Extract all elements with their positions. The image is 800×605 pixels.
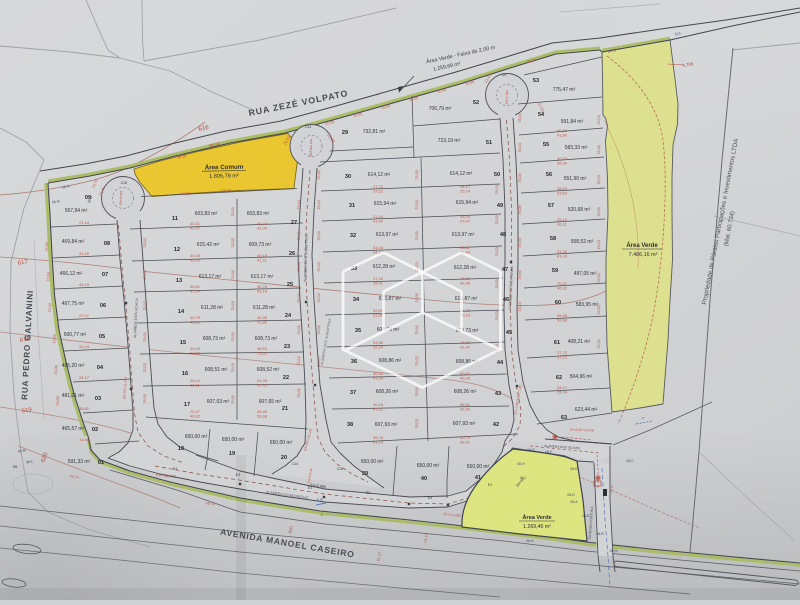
svg-text:613,17 m²: 613,17 m² — [199, 274, 222, 280]
svg-text:15,00: 15,00 — [317, 293, 322, 303]
svg-text:15,00: 15,00 — [415, 231, 420, 241]
svg-text:24,17: 24,17 — [79, 375, 90, 380]
svg-text:650,00 m²: 650,00 m² — [417, 463, 440, 469]
svg-text:15,00: 15,00 — [518, 270, 523, 280]
svg-text:Área Verde: Área Verde — [522, 514, 551, 521]
svg-text:63: 63 — [561, 415, 567, 421]
svg-text:15,00: 15,00 — [143, 270, 148, 280]
svg-text:15,00: 15,00 — [231, 270, 236, 280]
svg-text:567,94 m²: 567,94 m² — [65, 208, 88, 214]
svg-text:E1: E1 — [488, 483, 492, 487]
svg-text:40: 40 — [421, 476, 427, 482]
svg-text:26: 26 — [289, 251, 295, 257]
svg-text:E9+1 MN: E9+1 MN — [505, 90, 509, 104]
svg-text:56: 56 — [546, 172, 552, 178]
svg-text:40,92: 40,92 — [190, 414, 201, 419]
svg-text:15,03: 15,03 — [231, 363, 236, 373]
svg-text:E2: E2 — [366, 491, 370, 495]
svg-text:06-E: 06-E — [570, 467, 578, 471]
svg-text:15,00: 15,00 — [597, 339, 602, 349]
svg-text:E1: E1 — [308, 486, 312, 490]
svg-text:22: 22 — [283, 375, 289, 381]
svg-text:06-B: 06-B — [582, 514, 590, 518]
svg-text:15,03: 15,03 — [317, 262, 322, 272]
svg-text:706,79 m²: 706,79 m² — [429, 106, 452, 112]
svg-text:48: 48 — [500, 232, 506, 238]
svg-text:61: 61 — [554, 340, 560, 346]
svg-text:15,03: 15,03 — [231, 238, 236, 248]
svg-text:1.806,78 m²: 1.806,78 m² — [209, 173, 239, 180]
svg-text:15,03: 15,03 — [495, 185, 500, 195]
svg-text:15,00: 15,00 — [45, 242, 50, 252]
svg-text:31,04: 31,04 — [79, 344, 90, 349]
svg-text:40,92: 40,92 — [557, 286, 568, 291]
svg-text:06-I: 06-I — [520, 476, 526, 480]
svg-text:31: 31 — [349, 203, 355, 209]
svg-text:608,73 m²: 608,73 m² — [203, 336, 226, 342]
svg-text:59: 59 — [552, 268, 558, 274]
svg-text:41,40: 41,40 — [373, 219, 384, 224]
svg-text:C15: C15 — [337, 467, 343, 471]
svg-text:15,00: 15,00 — [518, 205, 523, 215]
svg-text:15,03: 15,03 — [143, 238, 148, 248]
svg-text:558,52 m²: 558,52 m² — [571, 239, 594, 245]
svg-text:11,44: 11,44 — [79, 437, 89, 442]
svg-text:15,00: 15,00 — [415, 170, 420, 180]
svg-text:06: 06 — [100, 303, 106, 309]
svg-text:60: 60 — [555, 300, 561, 306]
svg-text:37,22: 37,22 — [373, 189, 384, 194]
svg-text:583,33 m²: 583,33 m² — [565, 145, 588, 151]
svg-text:77,84: 77,84 — [221, 188, 232, 193]
svg-text:29: 29 — [342, 130, 348, 136]
svg-text:Área Comum: Área Comum — [205, 164, 244, 172]
svg-text:37: 37 — [350, 390, 356, 396]
svg-text:20: 20 — [281, 455, 287, 461]
svg-text:583,95 m²: 583,95 m² — [576, 302, 599, 308]
svg-text:611,28 m²: 611,28 m² — [253, 305, 275, 311]
svg-text:32,24: 32,24 — [373, 345, 384, 350]
svg-text:41,11: 41,11 — [257, 258, 267, 263]
svg-text:608,26 m²: 608,26 m² — [454, 389, 477, 395]
svg-text:15,00: 15,00 — [518, 173, 523, 183]
svg-text:06-C: 06-C — [626, 459, 634, 463]
svg-text:615,94 m²: 615,94 m² — [374, 201, 397, 207]
svg-text:15,00: 15,00 — [597, 207, 602, 217]
svg-text:41,09: 41,09 — [373, 376, 384, 381]
svg-text:15,00: 15,00 — [317, 170, 322, 180]
svg-text:723,19 m²: 723,19 m² — [438, 138, 461, 144]
svg-text:03: 03 — [95, 396, 101, 402]
svg-text:60+6,0E=12,00B: 60+6,0E=12,00B — [570, 428, 594, 433]
svg-text:612,28 m²: 612,28 m² — [373, 264, 396, 270]
svg-text:47: 47 — [502, 267, 508, 273]
svg-text:52: 52 — [473, 100, 479, 106]
svg-text:41,54: 41,54 — [460, 407, 471, 412]
svg-text:732,81 m²: 732,81 m² — [363, 129, 386, 135]
svg-text:15,03: 15,03 — [495, 311, 500, 321]
svg-text:27,07: 27,07 — [460, 219, 471, 224]
svg-text:36: 36 — [351, 359, 357, 365]
svg-text:06-A: 06-A — [526, 539, 534, 543]
svg-text:15,00: 15,00 — [54, 365, 59, 375]
svg-text:18: 18 — [178, 446, 184, 452]
svg-text:23,63: 23,63 — [557, 191, 568, 196]
svg-text:27: 27 — [291, 220, 297, 226]
svg-text:500,77 m²: 500,77 m² — [64, 332, 87, 338]
svg-text:608,51 m²: 608,51 m² — [205, 367, 228, 373]
svg-text:41: 41 — [475, 475, 481, 481]
svg-text:607,93 m²: 607,93 m² — [375, 422, 398, 428]
svg-text:495,20 m²: 495,20 m² — [62, 363, 85, 369]
svg-text:608,52 m²: 608,52 m² — [257, 367, 280, 373]
svg-text:41,40: 41,40 — [79, 251, 90, 256]
svg-text:15,00: 15,00 — [597, 273, 602, 283]
svg-text:15,00: 15,00 — [231, 395, 236, 405]
svg-text:08: 08 — [104, 241, 110, 247]
svg-text:40,93: 40,93 — [190, 258, 201, 263]
svg-text:603,83 m²: 603,83 m² — [195, 211, 218, 217]
svg-text:465,57 m²: 465,57 m² — [62, 426, 85, 432]
svg-text:15,00: 15,00 — [143, 394, 148, 404]
svg-text:15,00: 15,00 — [317, 325, 322, 335]
svg-text:04: 04 — [97, 365, 104, 371]
svg-text:21: 21 — [282, 406, 288, 412]
svg-text:41,80: 41,80 — [257, 320, 268, 325]
svg-text:650,00 m²: 650,00 m² — [270, 440, 293, 446]
svg-text:15,03: 15,03 — [297, 200, 302, 210]
svg-text:25: 25 — [287, 282, 293, 288]
svg-text:39,99: 39,99 — [190, 351, 201, 356]
svg-text:62: 62 — [556, 375, 562, 381]
svg-text:7.486,16 m²: 7.486,16 m² — [629, 252, 658, 258]
svg-text:35: 35 — [355, 328, 361, 334]
svg-text:607,63 m²: 607,63 m² — [207, 399, 230, 405]
svg-text:30: 30 — [345, 174, 351, 180]
svg-text:15,00: 15,00 — [46, 272, 51, 282]
svg-text:41,19: 41,19 — [373, 440, 384, 445]
svg-text:05: 05 — [99, 334, 105, 340]
svg-text:07: 07 — [102, 272, 108, 278]
svg-text:15,03: 15,03 — [415, 200, 420, 210]
svg-text:⊥: ⊥ — [320, 512, 324, 517]
svg-text:15,03: 15,03 — [317, 200, 322, 210]
svg-text:15,03: 15,03 — [597, 115, 602, 125]
svg-text:15,03: 15,03 — [597, 305, 602, 315]
svg-text:504,96 m²: 504,96 m² — [570, 374, 593, 380]
svg-text:469,84 m²: 469,84 m² — [62, 239, 85, 245]
svg-text:25,74: 25,74 — [460, 189, 471, 194]
svg-text:1.269,46 m²: 1.269,46 m² — [523, 524, 551, 530]
svg-text:06-G: 06-G — [527, 448, 535, 452]
svg-text:38: 38 — [347, 422, 353, 428]
svg-text:15,00: 15,00 — [495, 279, 500, 289]
svg-text:408,21 m²: 408,21 m² — [568, 339, 591, 345]
svg-text:19: 19 — [229, 451, 235, 457]
svg-text:39: 39 — [362, 471, 368, 477]
svg-text:623,44 m²: 623,44 m² — [575, 407, 598, 413]
svg-text:49,51: 49,51 — [460, 440, 471, 445]
svg-text:650,00 m²: 650,00 m² — [361, 459, 384, 465]
svg-text:15,00: 15,00 — [297, 388, 302, 398]
svg-text:15,03: 15,03 — [143, 301, 148, 311]
svg-text:615,94 m²: 615,94 m² — [456, 200, 479, 206]
svg-text:C14: C14 — [292, 462, 298, 466]
svg-text:14: 14 — [178, 309, 185, 315]
svg-text:C4: C4 — [502, 73, 507, 77]
svg-text:41,47: 41,47 — [460, 345, 471, 350]
svg-text:E4: E4 — [428, 496, 432, 500]
svg-text:615,42 m²: 615,42 m² — [197, 242, 220, 248]
svg-text:45,19: 45,19 — [79, 282, 90, 287]
svg-text:E4: E4 — [173, 467, 177, 471]
svg-text:466,12 m²: 466,12 m² — [60, 271, 83, 277]
svg-text:15,03: 15,03 — [415, 419, 420, 429]
svg-text:614,12 m²: 614,12 m² — [450, 171, 473, 177]
svg-text:610,87 m²: 610,87 m² — [455, 296, 478, 302]
svg-text:15,03: 15,03 — [518, 238, 523, 248]
svg-text:23: 23 — [284, 344, 290, 350]
svg-text:06-R: 06-R — [596, 532, 604, 536]
svg-text:608,73 m²: 608,73 m² — [255, 336, 278, 342]
svg-text:59,98: 59,98 — [557, 318, 568, 323]
svg-text:54: 54 — [538, 112, 545, 118]
svg-text:58: 58 — [550, 236, 556, 242]
svg-text:49,51: 49,51 — [190, 320, 201, 325]
svg-text:15,03: 15,03 — [597, 240, 602, 250]
svg-text:15,00: 15,00 — [415, 293, 420, 303]
svg-text:41,54: 41,54 — [190, 289, 201, 294]
svg-text:15,00: 15,00 — [55, 396, 60, 406]
svg-text:21,44: 21,44 — [79, 220, 90, 225]
svg-text:E9+E10M: E9+E10M — [119, 191, 124, 206]
svg-text:06-A: 06-A — [570, 500, 578, 504]
svg-text:15,03: 15,03 — [297, 356, 302, 366]
svg-text:37,22: 37,22 — [557, 355, 568, 360]
svg-text:24: 24 — [285, 313, 292, 319]
svg-text:15,03: 15,03 — [415, 356, 420, 366]
svg-text:611,28 m²: 611,28 m² — [201, 305, 223, 311]
svg-text:02: 02 — [92, 427, 98, 433]
svg-text:05: 05 — [13, 464, 18, 469]
svg-text:15,00: 15,00 — [297, 231, 302, 241]
svg-text:41,80: 41,80 — [557, 133, 568, 138]
svg-text:497,05 m²: 497,05 m² — [574, 271, 597, 277]
svg-text:11: 11 — [172, 216, 178, 222]
svg-text:609,73 m²: 609,73 m² — [249, 242, 272, 248]
svg-text:650,00 m²: 650,00 m² — [222, 437, 245, 443]
svg-text:57: 57 — [548, 203, 554, 209]
svg-text:15,00: 15,00 — [518, 113, 523, 123]
svg-text:15,00: 15,00 — [48, 303, 53, 313]
svg-text:613,17 m²: 613,17 m² — [251, 274, 274, 280]
svg-text:41,09: 41,09 — [257, 226, 268, 231]
svg-text:44: 44 — [497, 360, 504, 366]
svg-text:15,00: 15,00 — [231, 332, 236, 342]
svg-text:01: 01 — [98, 460, 104, 466]
svg-text:41,47: 41,47 — [190, 226, 201, 231]
svg-text:15,00: 15,00 — [317, 231, 322, 241]
svg-text:481,01 m²: 481,01 m² — [62, 393, 85, 399]
svg-text:15,03: 15,03 — [143, 363, 148, 373]
svg-text:06-D: 06-D — [567, 493, 575, 497]
svg-text:612,28 m²: 612,28 m² — [454, 265, 477, 271]
svg-text:613,97 m²: 613,97 m² — [376, 232, 399, 238]
svg-text:12: 12 — [174, 247, 180, 253]
svg-text:45: 45 — [506, 330, 512, 336]
svg-text:35,81: 35,81 — [79, 406, 90, 411]
svg-text:15,03: 15,03 — [317, 357, 322, 367]
svg-text:15: 15 — [180, 340, 186, 346]
svg-text:608,26 m²: 608,26 m² — [376, 389, 399, 395]
svg-text:≈: ≈ — [642, 416, 645, 422]
svg-text:27,07: 27,07 — [79, 313, 90, 318]
svg-text:17: 17 — [184, 402, 190, 408]
svg-text:41,43: 41,43 — [557, 254, 568, 259]
svg-text:607,93 m²: 607,93 m² — [453, 421, 476, 427]
svg-text:15,00: 15,00 — [231, 207, 236, 217]
svg-text:41,19: 41,19 — [257, 289, 268, 294]
svg-text:15,00: 15,00 — [597, 145, 602, 155]
svg-text:06-F: 06-F — [546, 450, 553, 454]
svg-text:591,33 m²: 591,33 m² — [68, 459, 91, 465]
svg-text:15,03: 15,03 — [297, 262, 302, 272]
svg-text:497,75 m²: 497,75 m² — [62, 301, 85, 307]
svg-text:42: 42 — [493, 422, 499, 428]
svg-text:15,00: 15,00 — [415, 325, 420, 335]
svg-text:15,03: 15,03 — [231, 301, 236, 311]
svg-text:15,00: 15,00 — [495, 215, 500, 225]
svg-text:15,00: 15,00 — [52, 334, 57, 344]
svg-text:40,93: 40,93 — [460, 376, 471, 381]
svg-text:15,03: 15,03 — [495, 247, 500, 257]
svg-text:15,00: 15,00 — [143, 332, 148, 342]
svg-text:650,00 m²: 650,00 m² — [467, 464, 490, 470]
svg-text:53: 53 — [533, 78, 539, 84]
svg-text:25,74: 25,74 — [557, 390, 568, 395]
svg-text:15,00: 15,00 — [415, 387, 420, 397]
svg-text:36,11: 36,11 — [190, 383, 200, 388]
svg-text:34: 34 — [353, 297, 360, 303]
svg-text:26,52: 26,52 — [181, 192, 191, 196]
svg-text:06-H: 06-H — [517, 462, 525, 466]
svg-text:43: 43 — [495, 391, 501, 397]
svg-text:15,03: 15,03 — [518, 143, 523, 153]
svg-text:39,99: 39,99 — [557, 161, 568, 166]
svg-text:603,83 m²: 603,83 m² — [247, 211, 270, 217]
svg-text:28,41: 28,41 — [373, 281, 384, 286]
svg-text:613,97 m²: 613,97 m² — [452, 232, 475, 238]
svg-text:41,11: 41,11 — [373, 407, 383, 412]
svg-text:C11: C11 — [305, 125, 311, 129]
svg-text:551,90 m²: 551,90 m² — [564, 176, 587, 182]
svg-text:775,47 m²: 775,47 m² — [553, 87, 576, 93]
svg-text:50: 50 — [494, 172, 500, 178]
svg-text:51: 51 — [486, 140, 492, 146]
svg-text:607,65 m²: 607,65 m² — [259, 399, 282, 405]
svg-text:41,45: 41,45 — [460, 281, 471, 286]
svg-text:15,03: 15,03 — [518, 302, 523, 312]
svg-text:06-FL: 06-FL — [610, 549, 619, 553]
svg-text:650,00 m²: 650,00 m² — [185, 434, 208, 440]
svg-text:ZEZinho MN: ZEZinho MN — [309, 138, 314, 157]
svg-text:614,12 m²: 614,12 m² — [368, 172, 391, 178]
svg-text:32: 32 — [350, 233, 356, 239]
svg-text:59,98: 59,98 — [257, 414, 268, 419]
svg-text:55: 55 — [543, 142, 549, 148]
svg-text:23,63: 23,63 — [257, 351, 268, 356]
svg-text:49: 49 — [497, 203, 503, 209]
svg-text:591,84 m²: 591,84 m² — [561, 119, 584, 125]
svg-text:C10: C10 — [121, 181, 128, 185]
svg-text:15,03: 15,03 — [597, 175, 602, 185]
svg-text:15,00: 15,00 — [297, 325, 302, 335]
svg-text:520,68 m²: 520,68 m² — [568, 207, 591, 213]
svg-text:Área Verde: Área Verde — [626, 242, 658, 249]
svg-text:608,86 m²: 608,86 m² — [379, 358, 402, 364]
svg-text:16: 16 — [182, 371, 188, 377]
svg-text:15,00: 15,00 — [297, 293, 302, 303]
svg-text:36,11: 36,11 — [557, 222, 567, 227]
svg-text:13: 13 — [176, 278, 182, 284]
svg-text:41,43: 41,43 — [257, 383, 268, 388]
